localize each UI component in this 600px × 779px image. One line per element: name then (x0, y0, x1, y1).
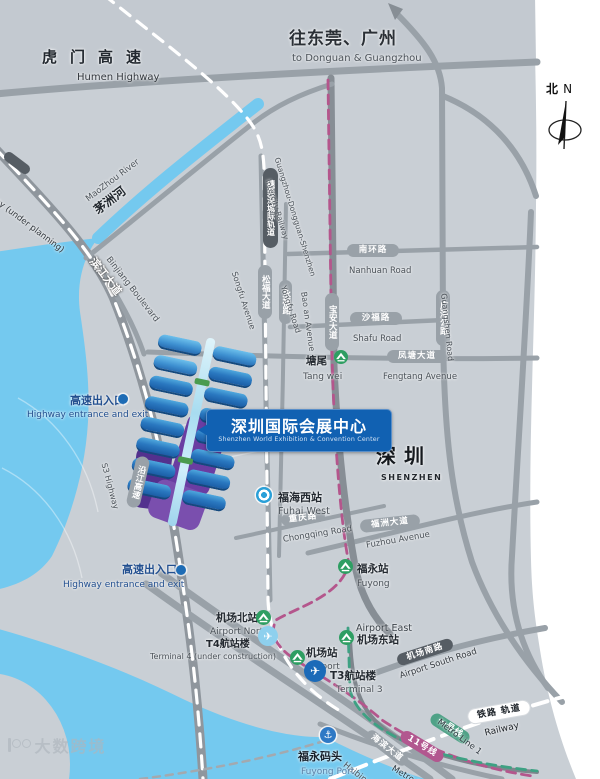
compass: 北 N (546, 78, 600, 157)
label-airport-east-zh: 机场东站 (357, 628, 399, 647)
road-capsule-shafu: 沙福路 (350, 312, 402, 325)
metro-station-icon-tangwei (334, 350, 348, 364)
metro-station-icon-fuyong (338, 559, 353, 574)
watermark-text: 大数跨境 (35, 733, 107, 757)
label-tangwei-en: Tang wei (303, 364, 342, 383)
label-humen-highway-en: Humen Highway (77, 65, 159, 84)
label-destination-en: to Donguan & Guangzhou (292, 46, 422, 65)
venue-title: 深圳国际会展中心 (231, 418, 367, 436)
map-canvas: 虎门高速 Humen Highway 往东莞、广州 to Donguan & G… (0, 0, 600, 779)
label-fuyong-en: Fuyong (357, 571, 390, 590)
label-terminal3-en: Terminal 3 (336, 677, 383, 696)
watermark: 大数跨境 (8, 733, 107, 757)
terminal4-plane-icon: ✈ (258, 626, 278, 646)
label-terminal4-en: Terminal 4 (under construction) (150, 644, 276, 663)
label-shenzhen-en: SHENZHEN (381, 465, 442, 484)
compass-needle-icon (546, 97, 586, 153)
label-highway-exit-1-en: Highway entrance and exit (27, 402, 148, 421)
venue-callout: 深圳国际会展中心 Shenzhen World Exhibition & Con… (206, 409, 392, 452)
terminal3-plane-icon: ✈ (304, 660, 326, 682)
fuyong-port-anchor-icon: ⚓ (320, 727, 336, 743)
compass-north-en: N (563, 82, 572, 96)
road-capsule-fengtang: 凤塘大道 (387, 350, 447, 363)
label-highway-exit-2-en: Highway entrance and exit (63, 572, 184, 591)
metro-station-icon-airport-east (339, 630, 354, 645)
compass-north-zh: 北 (546, 82, 558, 96)
venue-subtitle: Shenzhen World Exhibition & Convention C… (218, 436, 379, 443)
label-fuhai-west-en: Fuhai West (278, 499, 330, 518)
metro-station-icon-fuhai-west (256, 487, 272, 503)
label-humen-highway: 虎门高速 (42, 46, 154, 67)
watermark-logo-icon (8, 738, 31, 752)
label-shafu-en: Shafu Road (353, 326, 401, 345)
metro-station-icon-airport-north (256, 610, 271, 625)
road-capsule-baoan: 宝安大道 (325, 293, 339, 351)
metro-station-icon-airport (290, 650, 305, 665)
callout-pointer (198, 424, 208, 436)
label-nanhuan-en: Nanhuan Road (349, 258, 411, 277)
label-fuyong-port-en: Fuyong Port (301, 759, 354, 778)
label-fengtang-en: Fengtang Avenue (383, 364, 457, 383)
road-capsule-nanhuan: 南环路 (347, 244, 399, 257)
